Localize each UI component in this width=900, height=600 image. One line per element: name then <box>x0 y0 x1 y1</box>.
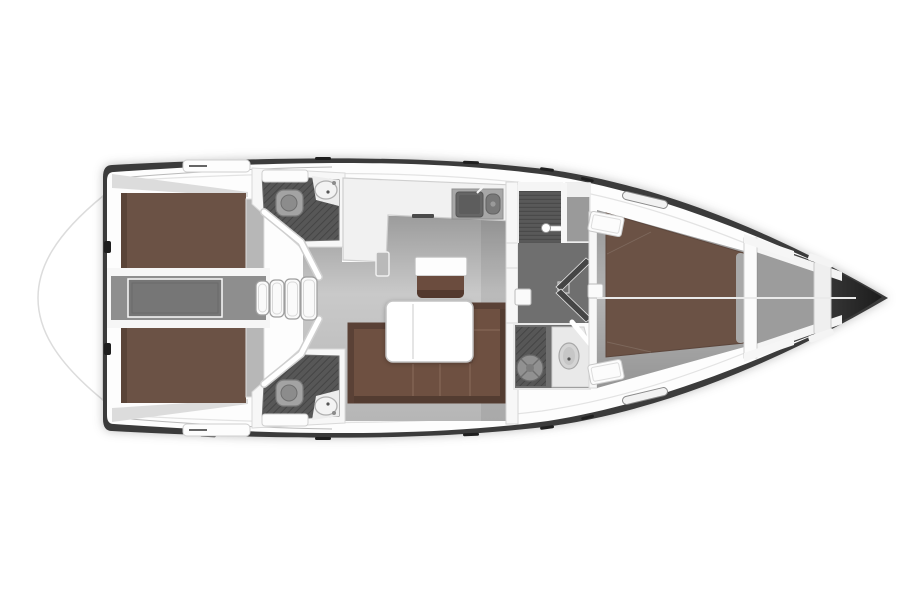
sofa-back-edge-right <box>472 303 507 309</box>
berth-headboard <box>121 324 127 403</box>
head-shelf <box>262 414 308 426</box>
shower-cabin <box>518 182 563 244</box>
corridor-step <box>515 289 531 305</box>
galley-end-module <box>376 252 389 276</box>
corridor <box>515 243 591 323</box>
wardrobe <box>566 183 590 242</box>
counter-handle <box>412 214 434 218</box>
yacht-floorplan-canvas <box>0 0 900 600</box>
sink-2-drain <box>490 201 495 206</box>
forward-head <box>514 322 591 389</box>
shower-wardrobe-wall <box>561 183 567 243</box>
salon-table <box>386 301 473 362</box>
toilet-cap <box>526 364 534 372</box>
toilet-bowl <box>281 385 297 401</box>
berth-headboard <box>121 193 127 272</box>
forward-cabin-wall <box>589 212 597 388</box>
head-shelf <box>262 170 308 182</box>
companionway-steps <box>256 277 317 320</box>
basin-drain <box>326 190 329 193</box>
nav-seat-edge <box>417 290 464 298</box>
side-table <box>415 257 467 276</box>
deck-hatch-aft-top <box>183 160 250 172</box>
double-berth <box>121 193 246 272</box>
engine-room <box>107 268 270 328</box>
shower-door-handle <box>542 224 551 233</box>
basin-bowl <box>563 347 575 365</box>
nav-station <box>415 257 467 298</box>
toilet-bowl <box>281 195 297 211</box>
deck-hatch-aft-bottom <box>183 424 250 436</box>
shower-top-shelf <box>518 182 563 191</box>
sink-bowl <box>459 195 480 214</box>
sofa-left-edge <box>348 323 354 403</box>
folding-table <box>386 301 473 362</box>
basin-drain <box>567 357 570 360</box>
double-berth <box>121 324 246 403</box>
cabin-step <box>588 284 603 298</box>
basin-tap <box>332 411 336 415</box>
basin-drain <box>326 402 329 405</box>
engine-box <box>128 279 222 317</box>
sofa-front-edge <box>348 396 507 403</box>
basin-tap <box>332 181 336 185</box>
yacht-floorplan <box>0 0 900 600</box>
forward-wet-area <box>514 182 597 389</box>
